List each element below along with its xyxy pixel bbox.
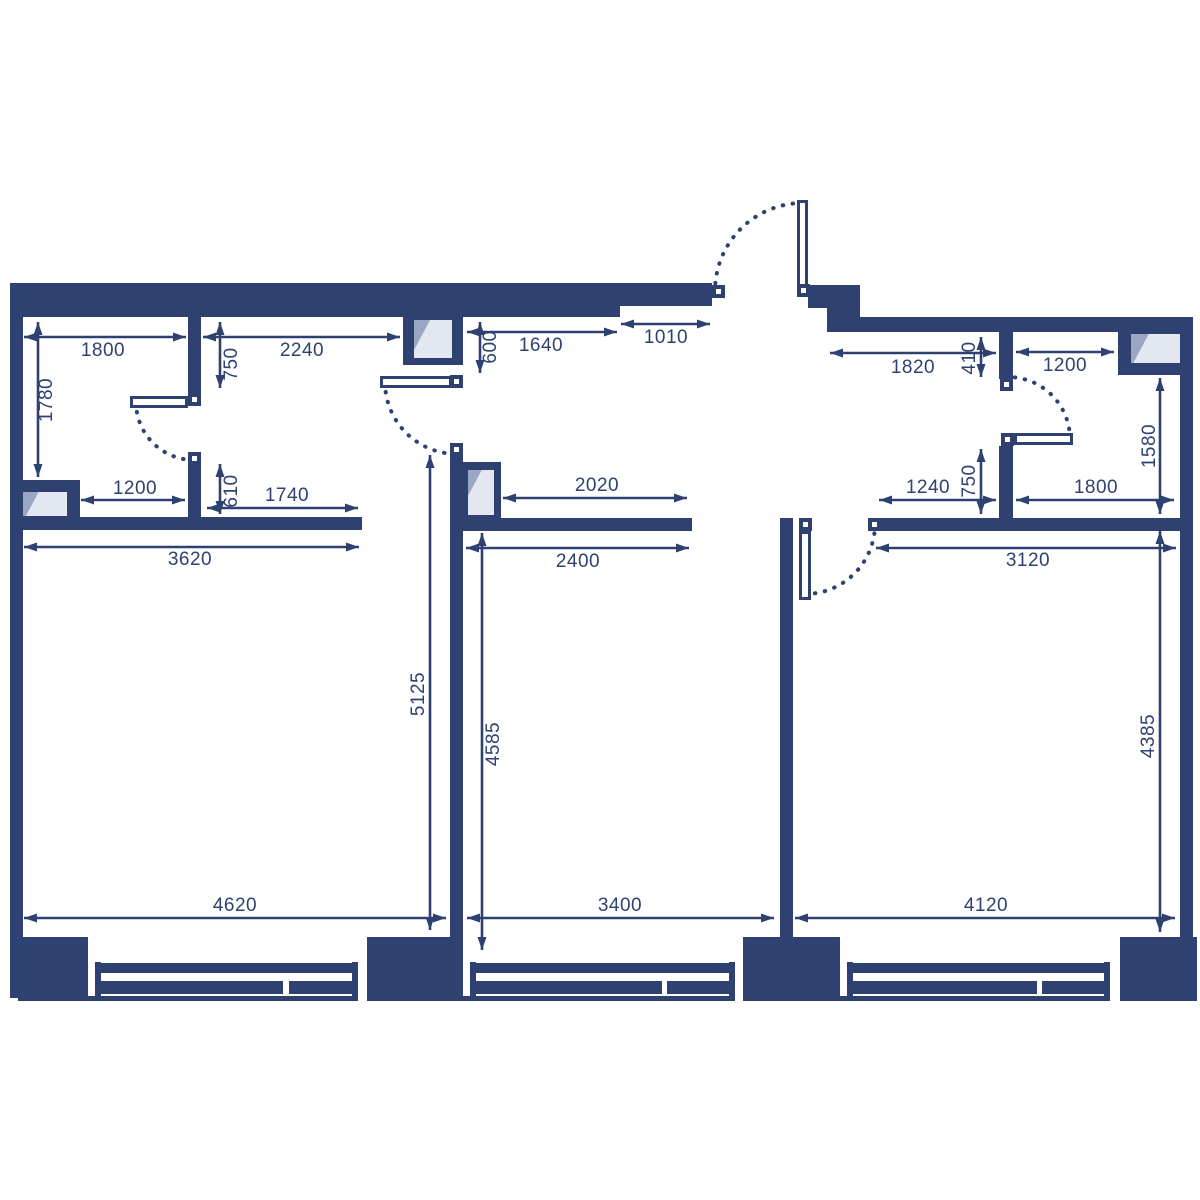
wall-segment <box>868 518 1192 531</box>
wall-segment <box>10 283 23 998</box>
dim-label: 4620 <box>213 895 257 917</box>
wall-segment <box>620 283 712 306</box>
dim-arrowhead <box>604 328 617 337</box>
door-leaf <box>799 531 811 600</box>
dim-arrowhead <box>426 455 435 468</box>
door-jamb <box>797 284 810 297</box>
dim-arrowhead <box>1156 919 1165 932</box>
wall-segment <box>999 446 1013 530</box>
wall-segment <box>22 517 362 530</box>
door-swing-arc <box>136 402 194 460</box>
door-jamb <box>712 285 725 298</box>
dim-arrowhead <box>346 543 359 552</box>
door-jamb <box>1001 433 1014 446</box>
door-hinge-pin <box>803 522 808 527</box>
dim-arrowhead <box>24 543 37 552</box>
dim-arrowhead <box>173 333 186 342</box>
door-swing-arc <box>1008 377 1070 439</box>
dim-arrowhead <box>207 504 220 513</box>
dim-arrowhead <box>34 322 43 335</box>
door-swing-arc <box>715 203 803 291</box>
window-frame <box>853 981 1037 994</box>
dim-label: 4120 <box>964 895 1008 917</box>
dim-label: 5125 <box>408 672 430 716</box>
dim-label: 2240 <box>280 340 324 362</box>
dim-label: 1580 <box>1139 424 1161 468</box>
dim-arrowhead <box>1101 348 1114 357</box>
dim-arrowhead <box>503 494 516 503</box>
door-hinge-pin <box>454 379 459 384</box>
window-frame <box>476 981 662 994</box>
dim-arrowhead <box>1162 914 1175 923</box>
dim-arrowhead <box>1016 348 1029 357</box>
wall-segment <box>188 313 201 398</box>
dim-arrowhead <box>478 937 487 950</box>
door-hinge-pin <box>716 289 721 294</box>
dim-arrowhead <box>467 914 480 923</box>
dim-label: 600 <box>480 330 502 363</box>
dim-label: 750 <box>959 464 981 497</box>
dim-label: 1800 <box>81 340 125 362</box>
vent-shaft-pane <box>468 470 494 515</box>
wall-segment <box>1120 937 1197 1001</box>
dim-label: 4585 <box>483 722 505 766</box>
dim-label: 1640 <box>519 335 563 357</box>
vent-shaft-pane <box>23 492 67 516</box>
door-leaf <box>380 376 452 388</box>
window-frame <box>476 963 729 973</box>
door-hinge-pin <box>872 522 877 527</box>
dim-label: 2400 <box>556 551 600 573</box>
dim-arrowhead <box>467 328 480 337</box>
door-hinge-pin <box>192 397 197 402</box>
dim-label: 610 <box>221 474 243 507</box>
dim-label: 3620 <box>168 549 212 571</box>
dim-arrowhead <box>977 501 986 514</box>
window-frame <box>840 996 1110 1001</box>
door-jamb <box>450 375 463 388</box>
dim-label: 3400 <box>598 895 642 917</box>
dim-label: 1200 <box>1043 355 1087 377</box>
door-hinge-pin <box>1005 437 1010 442</box>
dim-label: 3120 <box>1006 550 1050 572</box>
dim-label: 1740 <box>265 485 309 507</box>
dim-label: 4385 <box>1138 714 1160 758</box>
dim-label: 410 <box>959 341 981 374</box>
dim-arrowhead <box>34 464 43 477</box>
dim-label: 1780 <box>36 378 58 422</box>
door-hinge-pin <box>192 456 197 461</box>
dim-arrowhead <box>426 917 435 930</box>
wall-segment <box>780 518 793 937</box>
door-jamb <box>188 393 201 406</box>
dim-arrowhead <box>1016 496 1029 505</box>
dim-arrowhead <box>830 349 843 358</box>
dim-arrowhead <box>172 496 185 505</box>
dim-label: 750 <box>221 347 243 380</box>
dim-arrowhead <box>24 914 37 923</box>
door-jamb <box>799 518 812 531</box>
door-swing-arc <box>805 524 875 594</box>
door-leaf <box>130 396 188 408</box>
dim-label: 1240 <box>906 477 950 499</box>
wall-segment <box>1180 317 1193 998</box>
window-frame <box>101 981 283 994</box>
wall-segment <box>367 937 463 1001</box>
dim-arrowhead <box>1156 531 1165 544</box>
door-jamb <box>868 518 881 531</box>
dim-label: 1200 <box>113 478 157 500</box>
door-swing-arc <box>385 382 457 454</box>
window-frame <box>667 981 729 994</box>
dim-arrowhead <box>674 494 687 503</box>
dim-arrowhead <box>466 544 479 553</box>
wall-segment <box>18 937 88 1001</box>
window-frame <box>88 996 358 1001</box>
dim-arrowhead <box>387 333 400 342</box>
door-leaf <box>797 200 808 292</box>
window-frame <box>729 962 735 998</box>
dim-arrowhead <box>761 914 774 923</box>
dim-label: 1820 <box>891 357 935 379</box>
dim-arrowhead <box>621 320 634 329</box>
vent-shaft-pane <box>1131 334 1180 363</box>
door-hinge-pin <box>454 447 459 452</box>
dim-arrowhead <box>983 349 996 358</box>
dim-arrowhead <box>345 504 358 513</box>
dim-label: 1800 <box>1074 477 1118 499</box>
dim-arrowhead <box>697 320 710 329</box>
wall-segment <box>808 285 860 308</box>
door-leaf <box>1014 433 1073 445</box>
window-frame <box>1042 981 1104 994</box>
door-jamb <box>188 452 201 465</box>
window-frame <box>352 962 358 998</box>
floor-plan: 1800224016401010182012001200174020201240… <box>0 0 1200 1200</box>
window-frame <box>853 963 1104 973</box>
dim-arrowhead <box>983 496 996 505</box>
dim-arrowhead <box>876 544 889 553</box>
wall-segment <box>743 937 840 1001</box>
dim-arrowhead <box>24 333 37 342</box>
plan-overlay <box>0 0 1200 1200</box>
door-jamb <box>450 443 463 456</box>
dim-arrowhead <box>879 496 892 505</box>
dim-arrowhead <box>203 333 216 342</box>
vent-shaft-pane <box>414 320 452 358</box>
door-hinge-pin <box>801 288 806 293</box>
dim-arrowhead <box>81 496 94 505</box>
wall-segment <box>10 283 620 317</box>
dim-label: 1010 <box>644 327 688 349</box>
dim-arrowhead <box>478 533 487 546</box>
door-hinge-pin <box>1004 382 1009 387</box>
dim-arrowhead <box>795 914 808 923</box>
door-jamb <box>1000 378 1013 391</box>
dim-arrowhead <box>1163 544 1176 553</box>
dim-arrowhead <box>433 914 446 923</box>
dim-arrowhead <box>1156 378 1165 391</box>
window-frame <box>101 963 352 973</box>
window-frame <box>1104 962 1110 998</box>
dim-arrowhead <box>216 322 225 335</box>
wall-segment <box>827 306 860 332</box>
dim-arrowhead <box>1156 501 1165 514</box>
wall-segment <box>450 443 463 937</box>
wall-segment <box>999 332 1013 379</box>
dim-arrowhead <box>977 449 986 462</box>
window-frame <box>463 996 735 1001</box>
dim-label: 2020 <box>575 475 619 497</box>
window-frame <box>289 981 352 994</box>
dim-arrowhead <box>676 544 689 553</box>
dim-arrowhead <box>1161 496 1174 505</box>
